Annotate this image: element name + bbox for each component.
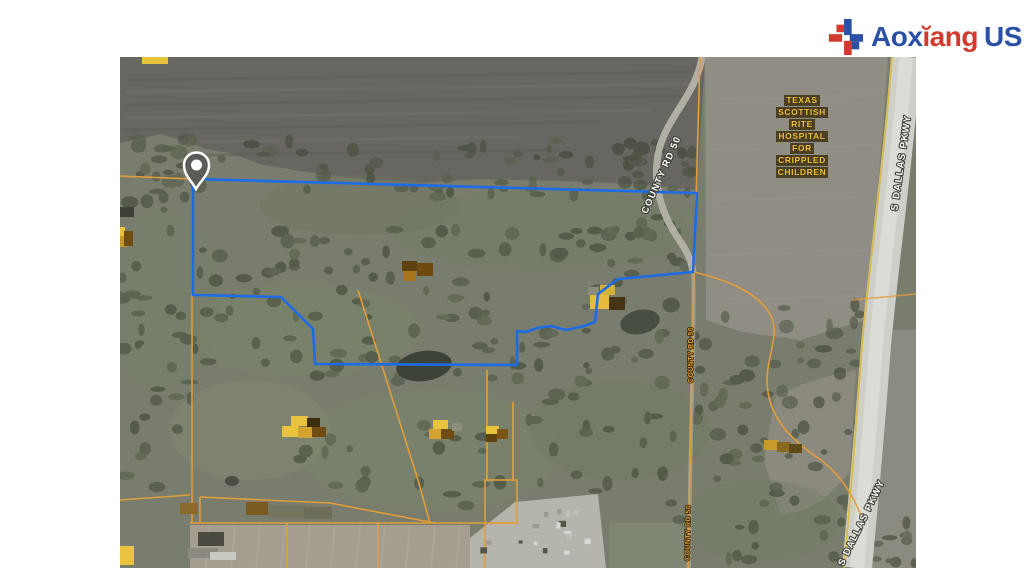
- hospital-label-line: FOR: [790, 143, 814, 154]
- hospital-label-line: SCOTTISH: [776, 107, 828, 118]
- hospital-label-line: CHILDREN: [776, 167, 829, 178]
- logo-text-part3: US: [984, 21, 1022, 52]
- county-rd-50-label-bottom: COUNTY RD 50: [685, 505, 693, 561]
- hospital-label-line: CRIPPLED: [776, 155, 828, 166]
- hospital-label: TEXAS SCOTTISH RITE HOSPITAL FOR CRIPPLE…: [752, 95, 852, 178]
- aoxiang-logo-text: AoxĭangUS: [871, 17, 1022, 57]
- listing-photo-page: COUNTY RD 50 S DALLAS PKWY S DALLAS PKWY…: [0, 0, 1024, 576]
- county-rd-50-label-mid: COUNTY RD 50: [688, 327, 695, 383]
- field-bottom-mid: [610, 523, 688, 568]
- aerial-map[interactable]: COUNTY RD 50 S DALLAS PKWY S DALLAS PKWY…: [0, 0, 1024, 576]
- aoxiang-logo: AoxĭangUS: [826, 16, 1022, 58]
- aoxiang-logo-icon: [826, 16, 864, 58]
- hospital-label-line: RITE: [789, 119, 815, 130]
- hospital-label-line: TEXAS: [784, 95, 819, 106]
- logo-text-part2: ĭang: [922, 21, 978, 52]
- hospital-label-line: HOSPITAL: [776, 131, 827, 142]
- logo-text-part1: Aox: [871, 21, 922, 52]
